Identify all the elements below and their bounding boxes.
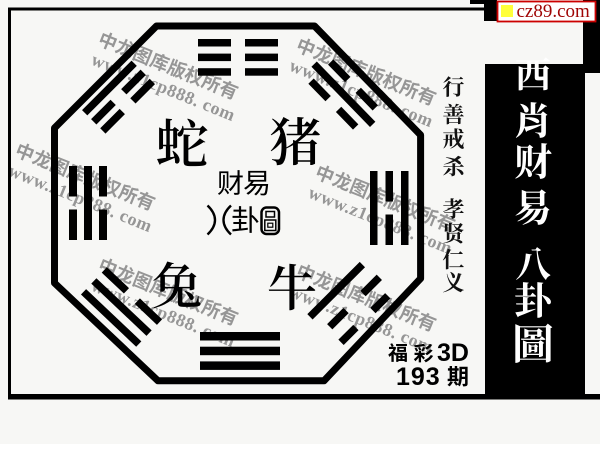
svg-text:193: 193 bbox=[396, 363, 441, 391]
svg-text:cz89.com: cz89.com bbox=[517, 1, 591, 22]
svg-text:3D: 3D bbox=[437, 339, 469, 367]
